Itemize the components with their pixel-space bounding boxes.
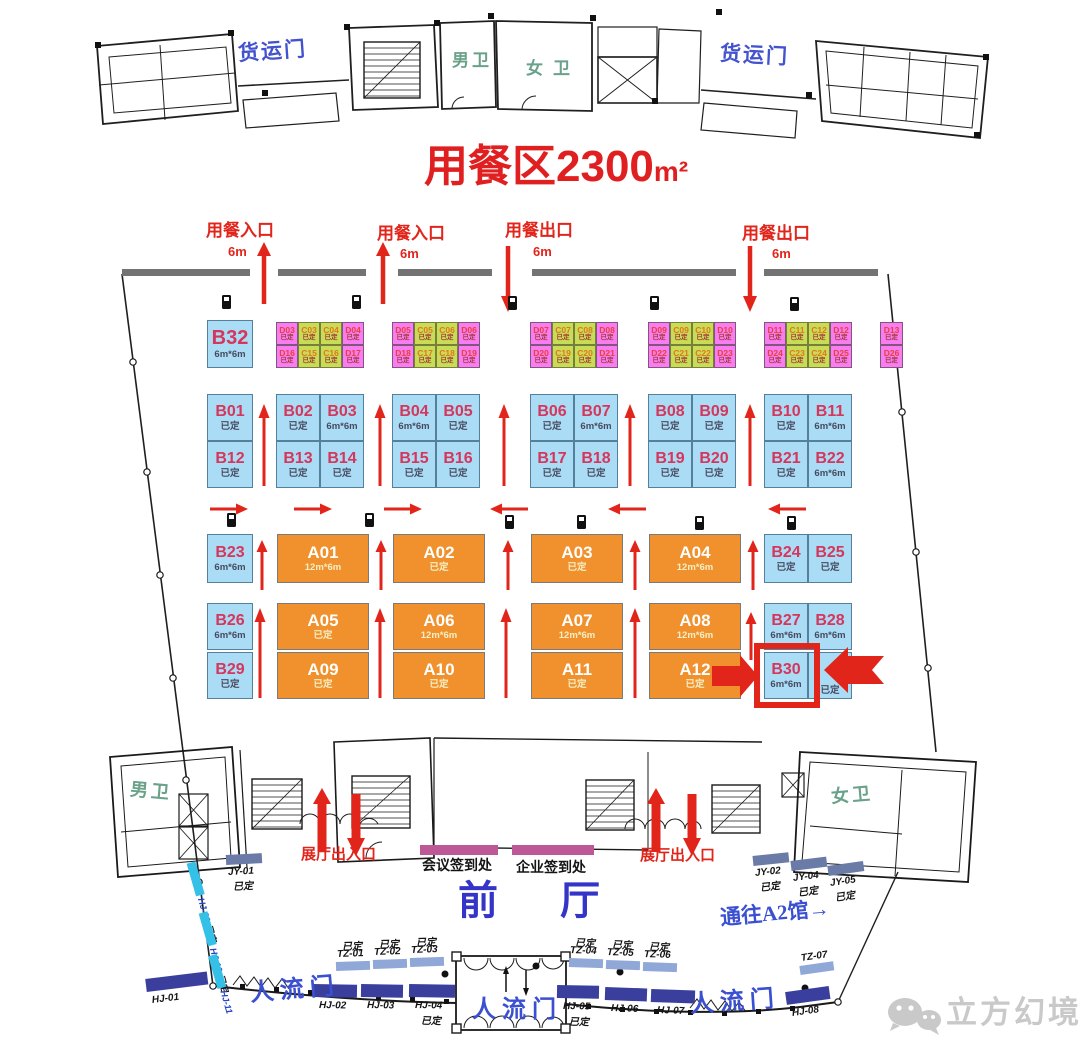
booth-A12[interactable]: A12已定 [649, 652, 741, 699]
door-bar-JY-04 [790, 857, 827, 871]
booth-B14[interactable]: B14已定 [320, 441, 364, 488]
cell-D07[interactable]: D07已定 [530, 322, 552, 345]
stair-treads [586, 780, 634, 830]
exhibit-exit-label: 展厅出入口 [301, 847, 376, 863]
cell-status: 已定 [697, 358, 710, 365]
cell-id: D24 [767, 349, 783, 358]
sign-desk-label: 企业签到处 [516, 860, 586, 875]
booth-id: B28 [815, 613, 844, 629]
people-door-label: 人流门 [689, 987, 781, 1018]
cell-id: D18 [395, 349, 411, 358]
aisle-right-arrow [320, 504, 332, 515]
stairs [712, 785, 760, 833]
booth-id: A12 [679, 661, 710, 678]
booth-id: B05 [443, 404, 472, 420]
cell-status: 已定 [769, 335, 782, 342]
sign-desk-bar [512, 845, 594, 855]
door-status: 已定 [416, 933, 437, 949]
cell-D24[interactable]: D24已定 [764, 345, 786, 368]
cell-D04[interactable]: D04已定 [342, 322, 364, 345]
aisle-up-arrow [499, 404, 510, 418]
cell-D18[interactable]: D18已定 [392, 345, 414, 368]
column-marker [344, 24, 350, 30]
cell-status: 已定 [579, 335, 592, 342]
cell-status: 已定 [325, 335, 338, 342]
cell-C21[interactable]: C21已定 [670, 345, 692, 368]
booth-B09[interactable]: B09已定 [692, 394, 736, 441]
aisle-up-arrow [259, 404, 270, 418]
aisle-up-arrow [375, 608, 386, 622]
cell-C19[interactable]: C19已定 [552, 345, 574, 368]
booth-status: 已定 [820, 686, 839, 696]
cell-id: C21 [673, 349, 689, 358]
booth-B06[interactable]: B06已定 [530, 394, 574, 441]
cell-id: D25 [833, 349, 849, 358]
cell-status: 已定 [397, 335, 410, 342]
door-icon [652, 298, 657, 302]
freight-door-left-label: 货运门 [237, 38, 307, 65]
cell-D19[interactable]: D19已定 [458, 345, 480, 368]
stairs [252, 779, 302, 829]
booth-status: 已定 [288, 422, 307, 432]
cell-id: C17 [417, 349, 433, 358]
cell-C12[interactable]: C12已定 [808, 322, 830, 345]
front-dot [533, 963, 540, 970]
hydrant-icon [365, 513, 374, 527]
dining-exit-label: 用餐出口 [742, 225, 810, 243]
door-label-HJ-02: HJ-02 [319, 1000, 346, 1011]
cell-C22[interactable]: C22已定 [692, 345, 714, 368]
cell-id: D20 [533, 349, 549, 358]
cell-status: 已定 [347, 335, 360, 342]
booth-id: B10 [771, 404, 800, 420]
exhibition-floor-plan: 用餐区2300m² 货运门 货运门 男卫 女卫 男卫 女卫 前厅 通往A2馆→ … [0, 0, 1080, 1064]
door-icon [354, 297, 359, 301]
booth-status: 已定 [220, 422, 239, 432]
column-marker [228, 30, 234, 36]
booth-id: B01 [215, 404, 244, 420]
booth-status: 12m*6m [559, 631, 595, 641]
booth-B07[interactable]: B076m*6m [574, 394, 618, 441]
hydrant-icon [507, 517, 512, 521]
booth-B32[interactable]: B326m*6m [207, 320, 253, 368]
booth-A03[interactable]: A03已定 [531, 534, 623, 583]
cell-status: 已定 [347, 358, 360, 365]
cell-status: 已定 [281, 358, 294, 365]
dining-exit-label: 用餐出口 [505, 222, 573, 240]
door-bar-TZ-04 [569, 958, 603, 968]
cell-D11[interactable]: D11已定 [764, 322, 786, 345]
booth-status: 6m*6m [580, 422, 611, 432]
hydrant-icon [505, 515, 514, 529]
booth-B27[interactable]: B276m*6m [764, 603, 808, 650]
column-marker [716, 9, 722, 15]
booth-status: 已定 [313, 680, 332, 690]
booth-id: A11 [562, 661, 592, 678]
cell-C04[interactable]: C04已定 [320, 322, 342, 345]
stair-treads [712, 785, 760, 833]
door-icon [790, 297, 799, 311]
booth-status: 已定 [332, 469, 351, 479]
cell-C05[interactable]: C05已定 [414, 322, 436, 345]
booth-id: A06 [423, 612, 454, 629]
cell-D26[interactable]: D26已定 [880, 345, 903, 368]
cell-C15[interactable]: C15已定 [298, 345, 320, 368]
front-dot [442, 971, 449, 978]
booth-status: 已定 [220, 680, 239, 690]
door-bar-HJ-01 [145, 971, 208, 991]
booth-B15[interactable]: B15已定 [392, 441, 436, 488]
booth-id: B02 [283, 404, 312, 420]
door-icon [650, 296, 659, 310]
booth-B12[interactable]: B12已定 [207, 441, 253, 488]
booth-A10[interactable]: A10已定 [393, 652, 485, 699]
hydrant-icon [367, 515, 372, 519]
door-id: HJ-11 [218, 989, 234, 1015]
dining-entrance-arrow [257, 242, 271, 256]
booth-A09[interactable]: A09已定 [277, 652, 369, 699]
entrance-width-label: 6m [400, 247, 419, 261]
cell-D16[interactable]: D16已定 [276, 345, 298, 368]
cell-D13[interactable]: D13已定 [880, 322, 903, 345]
cell-id: C08 [577, 326, 593, 335]
cell-C20[interactable]: C20已定 [574, 345, 596, 368]
door-status: 已定 [421, 1012, 441, 1027]
booth-B03[interactable]: B036m*6m [320, 394, 364, 441]
booth-B22[interactable]: B226m*6m [808, 441, 852, 488]
cell-status: 已定 [463, 335, 476, 342]
hydrant-icon [789, 518, 794, 522]
aisle-up-arrow [630, 608, 641, 622]
door-label-HJ-07: HJ-07 [657, 1005, 685, 1017]
hydrant-icon [579, 517, 584, 521]
door-bar-TZ-03 [410, 957, 444, 967]
booth-status: 12m*6m [677, 563, 713, 573]
booth-id: B18 [581, 451, 610, 467]
aisle-up-arrow [257, 540, 268, 552]
booth-status: 6m*6m [398, 422, 429, 432]
cell-status: 已定 [303, 358, 316, 365]
booth-B20[interactable]: B20已定 [692, 441, 736, 488]
cell-D25[interactable]: D25已定 [830, 345, 852, 368]
gate-arrow [506, 970, 526, 992]
cell-C07[interactable]: C07已定 [552, 322, 574, 345]
booth-A07[interactable]: A0712m*6m [531, 603, 623, 650]
cell-C17[interactable]: C17已定 [414, 345, 436, 368]
cell-id: D12 [833, 326, 849, 335]
cell-id: D08 [599, 326, 615, 335]
cell-status: 已定 [419, 335, 432, 342]
cell-C18[interactable]: C18已定 [436, 345, 458, 368]
cell-C10[interactable]: C10已定 [692, 322, 714, 345]
hydrant-icon [227, 513, 236, 527]
arcade-column [444, 999, 449, 1004]
booth-B01[interactable]: B01已定 [207, 394, 253, 441]
aisle-up-arrow [375, 404, 386, 418]
booth-id: B06 [537, 404, 566, 420]
dining-entrance-label: 用餐入口 [206, 222, 274, 240]
freight-door-right-label: 货运门 [719, 42, 789, 68]
booth-A01[interactable]: A0112m*6m [277, 534, 369, 583]
booth-B10[interactable]: B10已定 [764, 394, 808, 441]
door-label-HJ-04: HJ-04 [415, 1000, 442, 1011]
booth-status: 已定 [660, 469, 679, 479]
cell-id: C06 [439, 326, 455, 335]
booth-status: 已定 [542, 469, 561, 479]
cell-D21[interactable]: D21已定 [596, 345, 618, 368]
booth-id: A04 [679, 544, 710, 561]
cell-D22[interactable]: D22已定 [648, 345, 670, 368]
booth-id: B23 [215, 545, 244, 561]
boundary-node [183, 777, 189, 783]
column-marker [652, 98, 658, 104]
cell-id: D03 [279, 326, 295, 335]
booth-B19[interactable]: B19已定 [648, 441, 692, 488]
door-label-HJ-05: HJ-05 [563, 1001, 590, 1012]
booth-covered[interactable]: 已定 [808, 652, 852, 699]
entrance-width-label: 6m [228, 245, 247, 259]
booth-status: 已定 [776, 422, 795, 432]
door-status: 已定 [569, 1013, 589, 1028]
cell-D06[interactable]: D06已定 [458, 322, 480, 345]
door-label-HJ-06: HJ-06 [611, 1003, 639, 1015]
aisle-up-arrow [503, 540, 514, 552]
door-status: 已定 [342, 937, 363, 953]
cell-id: C20 [577, 349, 593, 358]
stair-treads [364, 42, 420, 98]
cell-C16[interactable]: C16已定 [320, 345, 342, 368]
cell-status: 已定 [441, 358, 454, 365]
cell-id: D11 [767, 326, 782, 335]
booth-B29[interactable]: B29已定 [207, 652, 253, 699]
booth-status: 已定 [704, 469, 723, 479]
cell-C24[interactable]: C24已定 [808, 345, 830, 368]
cell-status: 已定 [535, 335, 548, 342]
cell-D05[interactable]: D05已定 [392, 322, 414, 345]
booth-status: 已定 [448, 422, 467, 432]
cell-D12[interactable]: D12已定 [830, 322, 852, 345]
booth-B25[interactable]: B25已定 [808, 534, 852, 583]
booth-status: 已定 [313, 631, 332, 641]
cell-id: D23 [717, 349, 733, 358]
booth-id: B08 [655, 404, 684, 420]
booth-status: 6m*6m [814, 469, 845, 479]
cell-id: D07 [533, 326, 549, 335]
booth-status: 已定 [429, 680, 448, 690]
cell-D03[interactable]: D03已定 [276, 322, 298, 345]
booth-B26[interactable]: B266m*6m [207, 603, 253, 650]
booth-id: B04 [399, 404, 428, 420]
door-icon [224, 297, 229, 301]
column-marker [488, 13, 494, 19]
booth-status: 已定 [704, 422, 723, 432]
booth-id: B12 [215, 451, 244, 467]
booth-B04[interactable]: B046m*6m [392, 394, 436, 441]
booth-id: B24 [771, 545, 800, 561]
aisle-left-arrow [490, 504, 502, 515]
door-bar-TZ-06 [643, 962, 677, 972]
booth-id: B29 [215, 662, 244, 678]
cell-id: D10 [717, 326, 733, 335]
booth-id: B11 [816, 404, 844, 420]
cell-id: D06 [461, 326, 477, 335]
booth-id: A01 [307, 544, 338, 561]
booth-B24[interactable]: B24已定 [764, 534, 808, 583]
booth-status: 6m*6m [214, 631, 245, 641]
booth-status: 已定 [820, 563, 839, 573]
cell-id: C05 [417, 326, 433, 335]
booth-id: A10 [423, 661, 454, 678]
booth-B16[interactable]: B16已定 [436, 441, 480, 488]
cell-C23[interactable]: C23已定 [786, 345, 808, 368]
aisle-up-arrow [625, 404, 636, 418]
sign-desk-label: 会议签到处 [422, 858, 492, 873]
cell-id: C11 [789, 326, 804, 335]
cell-D08[interactable]: D08已定 [596, 322, 618, 345]
booth-B11[interactable]: B116m*6m [808, 394, 852, 441]
cell-status: 已定 [675, 335, 688, 342]
booth-status: 已定 [404, 469, 423, 479]
booth-id: A05 [307, 612, 338, 629]
aisle-right-arrow [410, 504, 422, 515]
door-bar-HJ-06 [605, 987, 647, 1001]
booth-A02[interactable]: A02已定 [393, 534, 485, 583]
dining-area-title: 用餐区2300m² [424, 144, 688, 190]
cell-id: D09 [651, 326, 667, 335]
booth-id: B27 [771, 613, 800, 629]
booth-A06[interactable]: A0612m*6m [393, 603, 485, 650]
aisle-up-arrow [501, 608, 512, 622]
cell-id: D17 [345, 349, 361, 358]
booth-id: B26 [215, 613, 244, 629]
title-unit: m² [654, 156, 688, 187]
booth-status: 已定 [586, 469, 605, 479]
stairs [586, 780, 634, 830]
booth-B08[interactable]: B08已定 [648, 394, 692, 441]
door-bar-HJ-04 [409, 984, 455, 998]
booth-id: B20 [699, 451, 728, 467]
cell-id: C24 [811, 349, 827, 358]
column-marker [806, 92, 812, 98]
womens-room-bottom-label: 女卫 [830, 784, 873, 806]
booth-id: A08 [679, 612, 710, 629]
cell-id: C07 [555, 326, 571, 335]
door-bar-TZ-05 [606, 960, 640, 970]
cell-D10[interactable]: D10已定 [714, 322, 736, 345]
door-bar-TZ-01 [336, 961, 370, 971]
booth-id: A02 [423, 544, 454, 561]
cell-status: 已定 [697, 335, 710, 342]
booth-status: 6m*6m [814, 631, 845, 641]
cell-D09[interactable]: D09已定 [648, 322, 670, 345]
cell-D20[interactable]: D20已定 [530, 345, 552, 368]
stairs [364, 42, 420, 98]
hydrant-icon [697, 518, 702, 522]
cell-status: 已定 [463, 358, 476, 365]
boundary-node [130, 359, 136, 365]
mens-room-bottom-label: 男卫 [129, 780, 172, 802]
cell-C11[interactable]: C11已定 [786, 322, 808, 345]
booth-B13[interactable]: B13已定 [276, 441, 320, 488]
booth-B05[interactable]: B05已定 [436, 394, 480, 441]
cell-status: 已定 [601, 335, 614, 342]
booth-A08[interactable]: A0812m*6m [649, 603, 741, 650]
stairs [352, 776, 410, 828]
cell-id: D13 [884, 326, 900, 335]
booth-B17[interactable]: B17已定 [530, 441, 574, 488]
booth-A11[interactable]: A11已定 [531, 652, 623, 699]
booth-B21[interactable]: B21已定 [764, 441, 808, 488]
cell-id: C04 [323, 326, 339, 335]
cell-id: C03 [301, 326, 317, 335]
entrance-width-label: 6m [772, 247, 791, 261]
cell-id: C12 [811, 326, 827, 335]
cell-id: D04 [345, 326, 361, 335]
cell-C06[interactable]: C06已定 [436, 322, 458, 345]
cell-D23[interactable]: D23已定 [714, 345, 736, 368]
cell-status: 已定 [791, 335, 804, 342]
booth-id: B30 [771, 662, 800, 678]
to-a2-hall-label: 通往A2馆→ [719, 897, 830, 929]
door-icon [510, 298, 515, 302]
door-bar [187, 861, 205, 896]
door-icon [352, 295, 361, 309]
booth-B18[interactable]: B18已定 [574, 441, 618, 488]
door-icon [508, 296, 517, 310]
cell-status: 已定 [885, 358, 898, 365]
booth-B02[interactable]: B02已定 [276, 394, 320, 441]
booth-status: 6m*6m [214, 350, 245, 360]
cell-status: 已定 [281, 335, 294, 342]
booth-id: B16 [443, 451, 472, 467]
door-label-HJ-08: HJ-08 [791, 1004, 820, 1019]
boundary-node [913, 549, 919, 555]
people-door-label: 人流门 [472, 998, 562, 1023]
dining-exit-arrow [501, 296, 515, 312]
cell-id: D21 [599, 349, 615, 358]
dining-entrance-arrow [376, 242, 390, 256]
booth-A05[interactable]: A05已定 [277, 603, 369, 650]
booth-status: 12m*6m [305, 563, 341, 573]
booth-status: 12m*6m [677, 631, 713, 641]
boundary-node [899, 409, 905, 415]
cell-status: 已定 [601, 358, 614, 365]
stair-treads [252, 779, 302, 829]
aisle-up-arrow [255, 608, 266, 622]
booth-B30[interactable]: B306m*6m [764, 652, 808, 699]
mens-room-top-label: 男卫 [452, 52, 492, 70]
door-icon [792, 299, 797, 303]
boundary-node [835, 999, 841, 1005]
column-marker [262, 90, 268, 96]
cell-C09[interactable]: C09已定 [670, 322, 692, 345]
arcade-column [240, 984, 245, 989]
booth-B23[interactable]: B236m*6m [207, 534, 253, 583]
top-architecture [97, 21, 988, 138]
cell-status: 已定 [557, 358, 570, 365]
cell-D17[interactable]: D17已定 [342, 345, 364, 368]
gate-arrow [523, 988, 529, 996]
booth-status: 6m*6m [770, 631, 801, 641]
cell-status: 已定 [397, 358, 410, 365]
hydrant-icon [577, 515, 586, 529]
booth-A04[interactable]: A0412m*6m [649, 534, 741, 583]
booth-id: B25 [815, 545, 844, 561]
cell-C03[interactable]: C03已定 [298, 322, 320, 345]
booth-B28[interactable]: B286m*6m [808, 603, 852, 650]
cell-id: D26 [884, 349, 900, 358]
cell-C08[interactable]: C08已定 [574, 322, 596, 345]
